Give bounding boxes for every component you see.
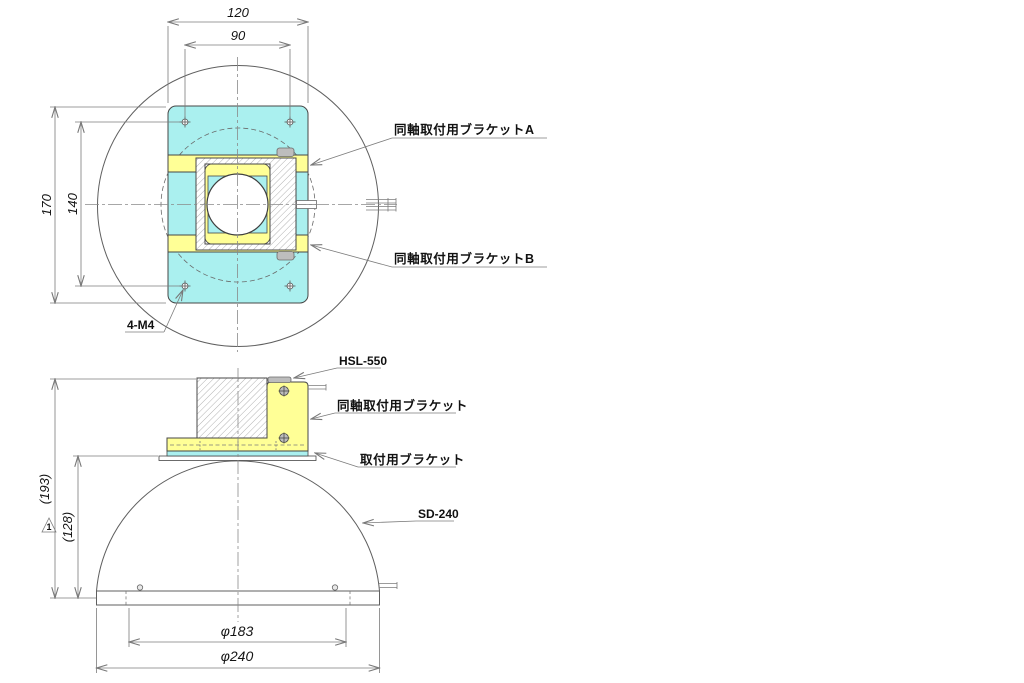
top-view (85, 57, 397, 352)
dim-outer-height: 170 (39, 193, 54, 215)
camera-cap (268, 377, 291, 383)
camera-block-hatch (197, 378, 267, 438)
revision-number: 1 (46, 522, 51, 532)
dim-dome-height: (128) (60, 512, 75, 542)
drawing-canvas: 120 90 170 140 4-M4 同軸取付用ブラケットA 同軸取付用ブラケ… (0, 0, 1024, 683)
bracket-b-label: 同軸取付用ブラケットB (394, 251, 535, 266)
dim-outer-width: 120 (227, 5, 249, 20)
mount-bracket-label: 取付用ブラケット (360, 452, 465, 467)
dome-label: SD-240 (418, 507, 459, 521)
clip-tab-top (277, 148, 294, 157)
dome-top-plate (159, 456, 316, 461)
dim-inner-height: 140 (65, 192, 80, 214)
dim-total-height: (193) (37, 474, 52, 504)
rim-screw-left (137, 585, 142, 590)
bracket-a-label: 同軸取付用ブラケットA (394, 122, 535, 137)
cad-drawing-sheet: 120 90 170 140 4-M4 同軸取付用ブラケットA 同軸取付用ブラケ… (0, 0, 1024, 683)
rim-connector (379, 582, 397, 589)
dim-outer-diameter: φ240 (221, 648, 254, 664)
dim-inner-width: 90 (231, 28, 246, 43)
mounting-bracket-side (167, 451, 308, 456)
camera-label: HSL-550 (339, 354, 387, 368)
clip-tab-bottom (277, 252, 294, 261)
rim-screw-right (332, 585, 337, 590)
bracket-connector (308, 384, 326, 391)
screw-callout: 4-M4 (127, 318, 155, 332)
coax-bracket-label: 同軸取付用ブラケット (337, 398, 468, 413)
dim-inner-diameter: φ183 (221, 623, 254, 639)
